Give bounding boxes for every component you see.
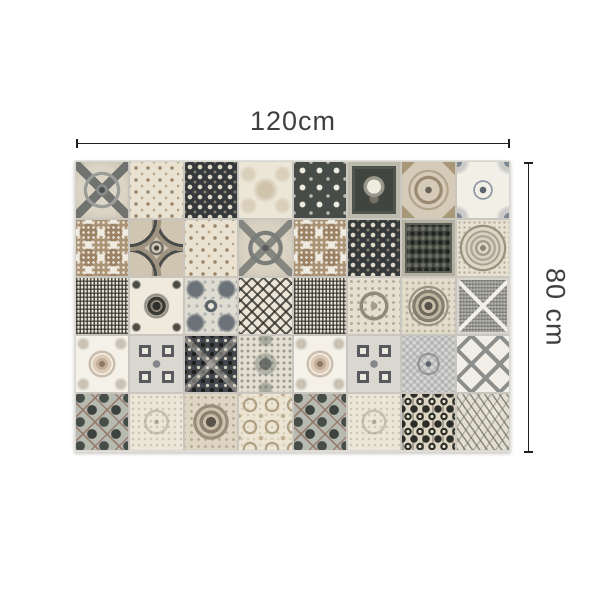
tile-black-ikat (402, 394, 454, 450)
tile-target-medallion (402, 278, 454, 334)
tile-taupe-rosette-dots (294, 220, 346, 276)
tile-sage-snowflake (76, 394, 128, 450)
tile-sage-snowflake (294, 394, 346, 450)
tile-tan-floral-lattice (185, 220, 237, 276)
tile-speckle-maze (294, 278, 346, 334)
tile-argyle-cross (239, 278, 291, 334)
tile-gray-circle-cross (239, 220, 291, 276)
tile-floral-circles (239, 394, 291, 450)
tile-taupe-ring (185, 394, 237, 450)
width-dimension-label: 120cm (77, 106, 509, 137)
tile-dark-kaleidoscope (185, 336, 237, 392)
height-dimension-label: 80 cm (538, 163, 572, 452)
tile-four-squares (130, 336, 182, 392)
tile-gray-kaleidoscope (185, 278, 237, 334)
product-dimension-image: { "dimensions": { "width_label": "120cm"… (0, 0, 600, 600)
tile-faded-medallion (130, 394, 182, 450)
tile-mat-image (74, 160, 511, 452)
tile-taupe-rosette-dots (76, 220, 128, 276)
tile-mottled-diamond (402, 336, 454, 392)
tile-charcoal-snowflake (294, 162, 346, 218)
tile-corner-flourish (457, 162, 509, 218)
tile-tan-floral-lattice (130, 162, 182, 218)
tile-faded-damask (239, 162, 291, 218)
tile-dark-damask (348, 220, 400, 276)
tile-diamond-x-speckle (457, 278, 509, 334)
tile-dark-pictorial (402, 220, 454, 276)
tile-gray-trellis (457, 336, 509, 392)
tile-damask-wreath (348, 278, 400, 334)
tile-feather-leaf (457, 394, 509, 450)
tile-black-sunflower (130, 278, 182, 334)
height-dimension-line (528, 163, 529, 452)
tile-rose-swirl (76, 336, 128, 392)
tile-taupe-octagon (402, 162, 454, 218)
tile-framed-bouquet (348, 162, 400, 218)
tile-four-squares (348, 336, 400, 392)
tile-grid (76, 162, 509, 450)
tile-dark-damask (185, 162, 237, 218)
tile-rose-swirl (294, 336, 346, 392)
tile-faded-medallion (348, 394, 400, 450)
tile-speckle-damask (239, 336, 291, 392)
tile-gray-cross-medallion (76, 162, 128, 218)
width-dimension-line (77, 143, 509, 144)
tile-speckle-maze (76, 278, 128, 334)
tile-concave-frame (130, 220, 182, 276)
tile-lace-mandala (457, 220, 509, 276)
